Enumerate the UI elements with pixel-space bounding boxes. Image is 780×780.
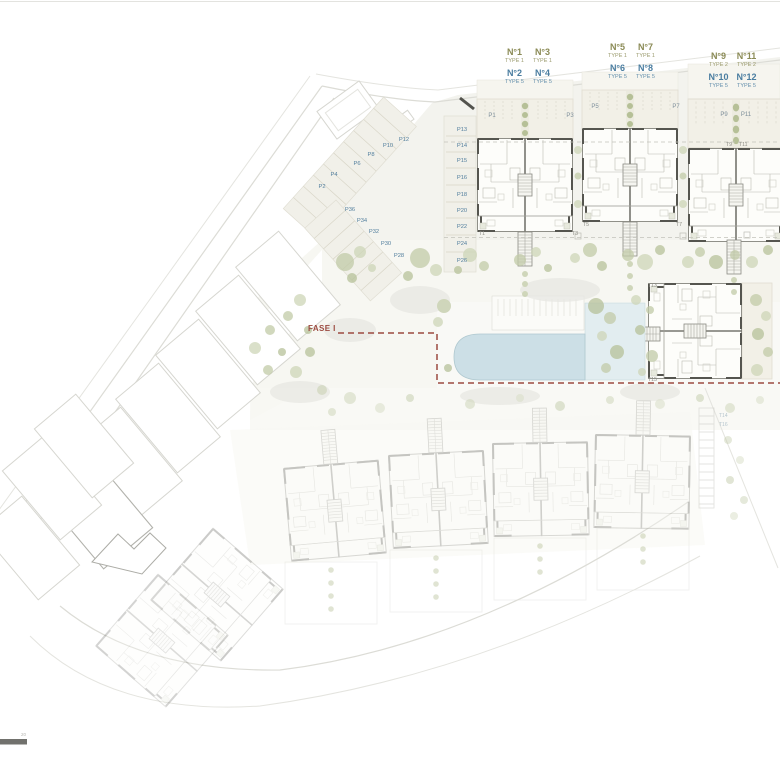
- parking-label: P24: [457, 241, 468, 247]
- parking-label: P26: [457, 258, 467, 264]
- site-plan-page: FASE I P1 P3 P5 P7 P9 P11 P13 P14 P15 P1…: [0, 0, 780, 780]
- legend-cell: N°4 TYPE 5: [529, 68, 556, 89]
- unit-number: N°7: [638, 42, 653, 52]
- unit-type: TYPE 5: [709, 83, 728, 89]
- parking-label: P14: [457, 143, 468, 149]
- unit-type: TYPE 5: [533, 79, 552, 85]
- terrace-label: T11: [739, 142, 748, 148]
- unit-type: TYPE 1: [505, 58, 524, 64]
- parking-label: P32: [369, 229, 379, 235]
- terrace-label: T1: [479, 231, 485, 237]
- pool-water: [454, 334, 585, 380]
- unit-number: N°3: [535, 47, 550, 57]
- terrace-label: T13: [648, 283, 657, 289]
- parking-label: P30: [381, 241, 391, 247]
- unit-number: N°5: [610, 42, 625, 52]
- parking-label: P12: [399, 137, 409, 143]
- unit-number: N°8: [638, 63, 653, 73]
- parking-label: P20: [457, 208, 467, 214]
- plot-label: P11: [741, 112, 752, 118]
- plot-label: P1: [488, 113, 496, 119]
- unit-number: N°10: [708, 72, 728, 82]
- parking-label: P34: [357, 218, 368, 224]
- parking-label: P18: [457, 192, 467, 198]
- unit-number: N°9: [711, 51, 726, 61]
- unit-type: TYPE 1: [533, 58, 552, 64]
- unit-type: TYPE 1: [608, 53, 627, 59]
- legend-cell: N°8 TYPE 5: [632, 63, 659, 84]
- plot-label: P5: [591, 104, 599, 110]
- plot-label: P9: [720, 112, 728, 118]
- terrace-label-faded: T14: [719, 413, 728, 419]
- unit-number: N°1: [507, 47, 522, 57]
- unit-number: N°2: [507, 68, 522, 78]
- scale-bar: 20: [0, 732, 27, 745]
- terrace-label: T7: [676, 222, 682, 228]
- unit-number: N°11: [737, 51, 757, 61]
- unit-number: N°4: [535, 68, 550, 78]
- legend-cell: N°7 TYPE 1: [632, 42, 659, 63]
- unit-legend-group-2: N°5 TYPE 1 N°7 TYPE 1 N°6 TYPE 5 N°8 TYP…: [604, 42, 659, 84]
- unit-type: TYPE 2: [737, 62, 756, 68]
- parking-label: P8: [367, 152, 374, 158]
- unit-legend-group-3: N°9 TYPE 2 N°11 TYPE 2 N°10 TYPE 5 N°12 …: [705, 51, 760, 93]
- unit-number: N°12: [736, 72, 756, 82]
- legend-cell: N°12 TYPE 5: [733, 72, 760, 93]
- unit-number: N°6: [610, 63, 625, 73]
- terrace-label: T15: [648, 377, 657, 383]
- parking-label: P22: [457, 224, 467, 230]
- unit-legend-group-1: N°1 TYPE 1 N°3 TYPE 1 N°2 TYPE 5 N°4 TYP…: [501, 47, 556, 89]
- unit-type: TYPE 5: [737, 83, 756, 89]
- unit-type: TYPE 5: [608, 74, 627, 80]
- site-plan-drawing: FASE I P1 P3 P5 P7 P9 P11 P13 P14 P15 P1…: [0, 0, 780, 780]
- unit-type: TYPE 1: [636, 53, 655, 59]
- parking-label: P4: [330, 172, 338, 178]
- legend-cell: N°6 TYPE 5: [604, 63, 631, 84]
- plot-label: P7: [672, 104, 680, 110]
- legend-cell: N°9 TYPE 2: [705, 51, 732, 72]
- parking-column-labels: P13 P14 P15 P16 P18 P20 P22 P24 P26: [457, 127, 468, 264]
- terrace-label-faded: T16: [719, 422, 728, 428]
- unit-type: TYPE 2: [709, 62, 728, 68]
- terrace-label: T9: [726, 142, 732, 148]
- parking-label: P36: [345, 207, 355, 213]
- scale-label: 20: [21, 732, 27, 737]
- phase-label: FASE I: [308, 324, 336, 333]
- legend-cell: N°11 TYPE 2: [733, 51, 760, 72]
- parking-label: P16: [457, 175, 467, 181]
- unit-type: TYPE 5: [636, 74, 655, 80]
- legend-cell: N°5 TYPE 1: [604, 42, 631, 63]
- parking-label: P13: [457, 127, 467, 133]
- legend-cell: N°10 TYPE 5: [705, 72, 732, 93]
- terrace-label: T5: [583, 222, 589, 228]
- unit-type: TYPE 5: [505, 79, 524, 85]
- parking-label: P6: [353, 161, 360, 167]
- parking-label: P15: [457, 158, 467, 164]
- parking-label: P10: [383, 143, 393, 149]
- parking-label: P28: [394, 253, 404, 259]
- parking-label: P2: [318, 184, 325, 190]
- pool-shallow: [585, 303, 645, 380]
- legend-cell: N°2 TYPE 5: [501, 68, 528, 89]
- plot-label: P3: [566, 113, 574, 119]
- legend-cell: N°1 TYPE 1: [501, 47, 528, 68]
- legend-cell: N°3 TYPE 1: [529, 47, 556, 68]
- terrace-label: T3: [572, 231, 578, 237]
